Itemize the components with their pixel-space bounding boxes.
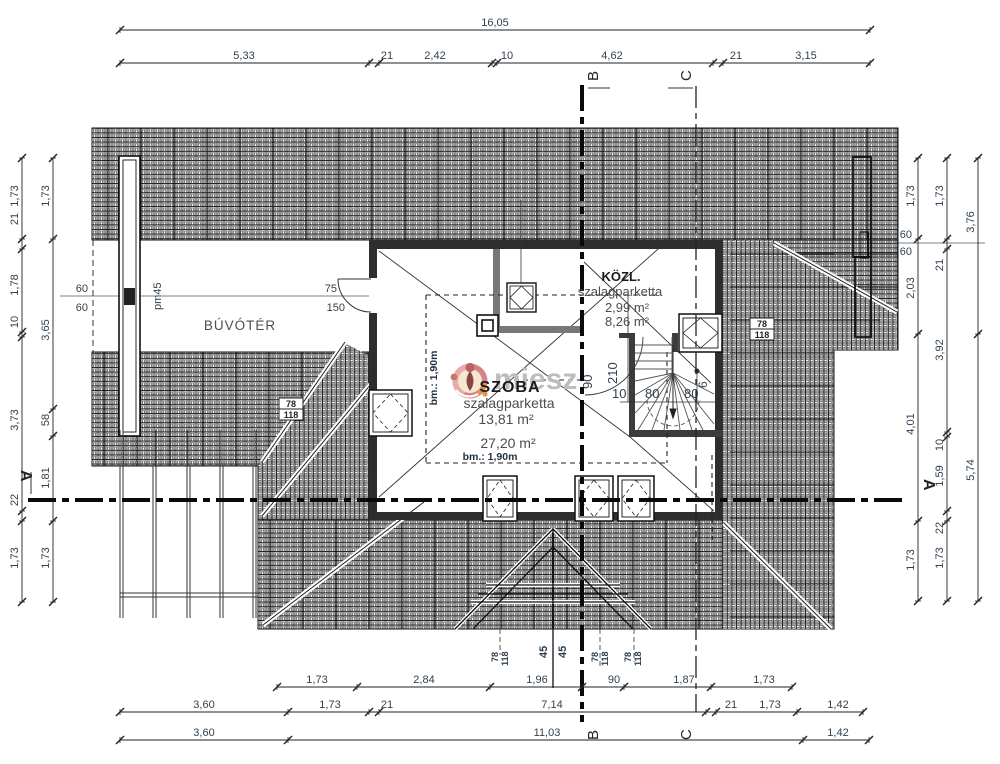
svg-text:150: 150 — [327, 302, 345, 314]
svg-text:21: 21 — [725, 699, 737, 711]
svg-text:4,01: 4,01 — [905, 413, 917, 434]
svg-text:SZOBA: SZOBA — [480, 379, 541, 396]
svg-text:1,73: 1,73 — [905, 185, 917, 206]
svg-text:27,20 m²: 27,20 m² — [480, 435, 536, 451]
svg-text:78: 78 — [286, 399, 296, 409]
svg-text:2,03: 2,03 — [905, 277, 917, 298]
svg-text:1,42: 1,42 — [827, 727, 848, 739]
svg-text:1,42: 1,42 — [827, 699, 848, 711]
svg-text:10: 10 — [9, 316, 21, 328]
svg-text:B: B — [585, 730, 602, 740]
svg-text:8,26 m²: 8,26 m² — [605, 314, 650, 329]
svg-text:5,33: 5,33 — [233, 50, 254, 62]
svg-text:21: 21 — [934, 259, 946, 271]
svg-text:78: 78 — [623, 652, 633, 662]
svg-text:bm.: 1,90m: bm.: 1,90m — [463, 451, 518, 463]
svg-text:118: 118 — [755, 330, 770, 340]
svg-text:58: 58 — [40, 414, 52, 426]
svg-text:2,99 m²: 2,99 m² — [605, 300, 650, 315]
svg-text:szalagparketta: szalagparketta — [578, 284, 663, 299]
svg-text:pm45: pm45 — [152, 282, 164, 310]
svg-text:22: 22 — [934, 522, 946, 534]
svg-text:60: 60 — [76, 283, 88, 295]
svg-text:2,84: 2,84 — [413, 674, 434, 686]
svg-text:3,65: 3,65 — [40, 319, 52, 340]
svg-text:11,03: 11,03 — [534, 727, 561, 739]
svg-text:60: 60 — [900, 229, 912, 241]
svg-text:1,73: 1,73 — [9, 547, 21, 568]
svg-text:3,73: 3,73 — [9, 409, 21, 430]
svg-text:BÚVÓTÉR: BÚVÓTÉR — [204, 318, 276, 333]
svg-text:1,73: 1,73 — [759, 699, 780, 711]
svg-text:118: 118 — [284, 410, 299, 420]
svg-text:KÖZL.: KÖZL. — [602, 269, 641, 284]
svg-text:21: 21 — [730, 50, 742, 62]
svg-text:1,59: 1,59 — [934, 465, 946, 486]
svg-text:45: 45 — [557, 646, 569, 658]
svg-text:118: 118 — [500, 651, 510, 666]
svg-text:6: 6 — [696, 381, 710, 388]
svg-text:210: 210 — [605, 362, 620, 384]
svg-text:75: 75 — [325, 283, 337, 295]
svg-text:118: 118 — [600, 651, 610, 666]
svg-text:45: 45 — [538, 646, 550, 658]
svg-text:3,60: 3,60 — [193, 727, 214, 739]
svg-text:C: C — [678, 729, 695, 740]
svg-text:22: 22 — [9, 494, 21, 506]
svg-text:1,73: 1,73 — [934, 547, 946, 568]
svg-text:60: 60 — [76, 302, 88, 314]
svg-text:21: 21 — [9, 213, 21, 225]
svg-text:78: 78 — [590, 652, 600, 662]
svg-text:1,73: 1,73 — [306, 674, 327, 686]
svg-text:4,62: 4,62 — [601, 50, 622, 62]
svg-text:3,15: 3,15 — [795, 50, 816, 62]
svg-text:16,05: 16,05 — [481, 17, 509, 29]
svg-text:80: 80 — [645, 386, 659, 401]
svg-text:21: 21 — [381, 50, 393, 62]
svg-text:1,78: 1,78 — [9, 274, 21, 295]
svg-text:90: 90 — [608, 674, 620, 686]
svg-text:szalagparketta: szalagparketta — [463, 395, 554, 411]
svg-text:3,76: 3,76 — [965, 211, 977, 232]
svg-text:10: 10 — [501, 50, 513, 62]
svg-text:bm.: 1,90m: bm.: 1,90m — [428, 351, 440, 406]
svg-text:21: 21 — [381, 699, 393, 711]
svg-text:1,81: 1,81 — [40, 467, 52, 488]
svg-text:13,81 m²: 13,81 m² — [478, 411, 534, 427]
svg-text:3,60: 3,60 — [193, 699, 214, 711]
svg-text:78: 78 — [490, 652, 500, 662]
svg-text:1,73: 1,73 — [9, 185, 21, 206]
svg-text:B: B — [585, 71, 602, 81]
svg-text:3,92: 3,92 — [934, 339, 946, 360]
svg-text:2,42: 2,42 — [424, 50, 445, 62]
svg-text:10: 10 — [934, 439, 946, 451]
svg-text:1,73: 1,73 — [753, 674, 774, 686]
svg-text:5,74: 5,74 — [965, 459, 977, 480]
svg-text:1,96: 1,96 — [526, 674, 547, 686]
svg-text:1,73: 1,73 — [905, 549, 917, 570]
svg-text:60: 60 — [900, 246, 912, 258]
svg-text:1,73: 1,73 — [40, 547, 52, 568]
svg-text:1,73: 1,73 — [319, 699, 340, 711]
svg-text:10: 10 — [612, 386, 626, 401]
svg-text:1,73: 1,73 — [40, 185, 52, 206]
svg-text:78: 78 — [757, 319, 767, 329]
svg-text:118: 118 — [633, 651, 643, 666]
svg-text:1,87: 1,87 — [673, 674, 694, 686]
svg-text:C: C — [678, 70, 695, 81]
svg-text:1,73: 1,73 — [934, 185, 946, 206]
svg-text:7,14: 7,14 — [541, 699, 562, 711]
